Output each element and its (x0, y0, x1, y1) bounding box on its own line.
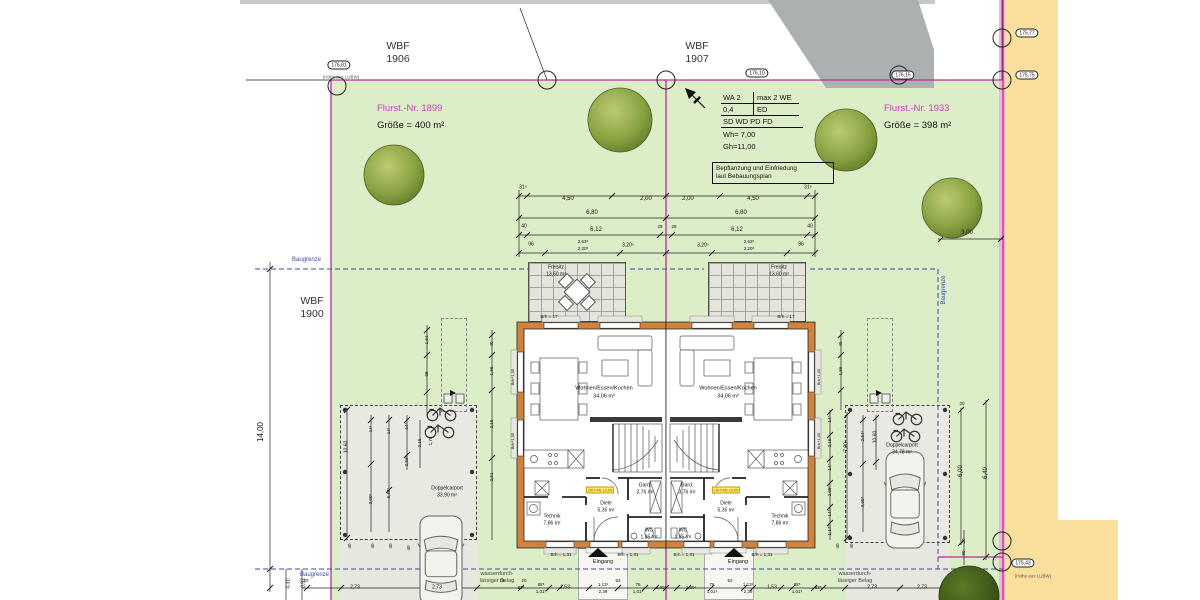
wbf-1907-label: WBF1907 (662, 40, 732, 65)
elevation-source-label: (Höhe aus LUBW) (1015, 574, 1052, 579)
dim-label: 2,00 (682, 196, 694, 202)
survey-point-marker (993, 532, 1011, 550)
dim-label: 3,20⁵ (697, 244, 709, 249)
dim-label: 4,50 (747, 196, 759, 202)
dim-label: 1,09¹ (656, 586, 666, 591)
dim-label: 1,86 (490, 367, 495, 376)
zoning-wh: Wh= 7,00 (721, 128, 803, 140)
floor-level-tag: OK FFB ±0,00 (712, 487, 740, 494)
dim-label: 14,00 (257, 422, 265, 442)
dimension-line (520, 8, 547, 80)
dim-label: 3,00⁵ (369, 494, 374, 505)
dim-label: 1,53 (560, 586, 570, 591)
paving-note-left: wasserdurch-lässiger Belag (480, 571, 515, 585)
dim-label: 40 (839, 341, 844, 346)
bicycle-icon (427, 408, 456, 421)
dim-label: 2,73 (432, 586, 442, 591)
dim-label: 2,73 (917, 586, 927, 591)
dim-label: 1,64 (425, 336, 430, 345)
elevation-label: 175,43 (1011, 559, 1034, 568)
dim-label: 31⁵ (804, 186, 812, 191)
dim-label: WC (679, 529, 687, 534)
dim-label: 13,60 m² (546, 273, 566, 278)
dim-label: Brh = 1,31 (618, 553, 639, 558)
zoning-gh: Gh=11,00 (721, 140, 803, 152)
zoning-units: max 2 WE (753, 92, 799, 103)
dim-label: 1,01⁵ (707, 590, 718, 595)
dim-label: 31⁵ (519, 186, 527, 191)
dim-label: 6,40 (983, 467, 989, 479)
dim-label: 88⁵ (794, 583, 801, 588)
dim-label: 33,90 m² (437, 494, 457, 499)
dim-label: 4,50 (562, 196, 574, 202)
dim-label: Freisitz (548, 266, 564, 271)
dim-label: 76 (709, 583, 714, 588)
dim-label: Brh+1,05 (511, 433, 515, 449)
dim-label: 14⁵ (828, 510, 833, 517)
dim-label: 87⁵ (518, 586, 525, 591)
dim-label: 52 (727, 579, 732, 584)
dim-label: 2,20⁵ (578, 247, 589, 252)
dim-label: 1,01⁵ (633, 590, 644, 595)
dim-label: 20 (962, 538, 967, 543)
parcel-left-label: Flurst.-Nr. 1899 Größe = 400 m² (377, 100, 444, 134)
planting-note: Bepflanzung und Einfriedunglaut Bebauung… (712, 162, 834, 184)
dim-label: 2,39 (599, 590, 608, 595)
dim-label: 1,13¹ (598, 583, 608, 588)
tree (364, 145, 424, 205)
dim-label: 87⁵ (815, 586, 822, 591)
dim-label: Doppelcarport (431, 487, 462, 492)
paving-note-right: wasserdurch-lässiger Belag (838, 571, 873, 585)
dim-label: 5,35 m² (718, 509, 735, 514)
dim-label: 6,80 (586, 210, 598, 216)
dim-label: Brh = 17 (540, 315, 557, 320)
dim-label: 2,56⁵ (405, 456, 410, 467)
dim-label: 3,00⁵ (861, 497, 866, 508)
dim-label: 2,00 (640, 196, 652, 202)
dim-label: 40 (348, 543, 353, 548)
dim-label: 10,60 (345, 441, 350, 454)
dim-label: 14¹ (387, 428, 392, 435)
dim-label: 1,85 m² (675, 536, 692, 541)
dim-label: Wohnen/Essen/Kochen (699, 386, 756, 392)
tree (922, 178, 982, 238)
dim-label: 28 (657, 225, 662, 230)
house-unit (511, 316, 666, 554)
tree (588, 88, 652, 152)
dim-label: 1,17⁵ (828, 525, 833, 536)
bicycle-icon (891, 429, 920, 442)
dim-label: 98 (425, 371, 430, 376)
dim-label: Brh = 1,31 (674, 553, 695, 558)
dim-label: Brh = 1,31 (551, 553, 572, 558)
dim-label: 1,13¹ (743, 583, 753, 588)
dim-label: 10,60 (874, 431, 879, 444)
dim-label: 40 (850, 543, 855, 548)
dim-label: Brh+1,05 (817, 369, 821, 385)
dim-label: Brh+1,05 (511, 369, 515, 385)
baugrenze-label-right: Baugrenze (941, 275, 947, 304)
dim-label: 14⁵ (405, 423, 410, 430)
dim-label: Freisitz (771, 266, 787, 271)
dim-label: 1,78 (429, 437, 434, 446)
bicycle-icon (893, 412, 922, 425)
floor-level-tag: OK FFB ±0,00 (586, 487, 614, 494)
survey-point-marker (993, 553, 1011, 571)
zoning-roof-types: SD WD PD FD (721, 116, 803, 128)
dim-label: 20 (521, 579, 526, 584)
dim-label: 20 (959, 402, 964, 407)
dim-label: 40 (407, 545, 412, 550)
dim-label: 5,69⁵ (387, 488, 392, 499)
elevation-label: 176,81 (327, 61, 350, 70)
dim-label: 76 (635, 583, 640, 588)
dim-label: 4,31¹ (287, 577, 292, 588)
elevation-label: 176,15 (891, 71, 914, 80)
dim-label: 2,15 (828, 439, 833, 448)
dim-label: 14 (499, 579, 504, 584)
dim-label: 2,73 (867, 586, 877, 591)
dim-label: Technik (772, 515, 789, 520)
dim-label: 53 (615, 579, 620, 584)
dim-label: 40 (490, 341, 495, 346)
dim-label: Brh+1,05 (817, 433, 821, 449)
dim-label: 3,76 m² (679, 491, 696, 496)
dim-label: 1,09¹ (686, 586, 696, 591)
dim-label: 2,15 (490, 420, 495, 429)
dim-label: 34,06 m² (717, 394, 739, 400)
dim-label: 3,76 m² (637, 491, 654, 496)
dim-label: 1,01⁵ (792, 590, 803, 595)
dim-label: 80 (962, 550, 967, 555)
dim-label: 40 (371, 543, 376, 548)
dim-label: 13,60 m² (769, 273, 789, 278)
dim-label: 34,78 m² (892, 451, 912, 456)
elevation-source-label: (Höhe aus LUBW) (323, 75, 360, 80)
dim-label: 7,86 m² (544, 522, 561, 527)
dim-label: 1,01⁵ (536, 590, 547, 595)
dim-label: Brh = 1,31 (752, 553, 773, 558)
dim-label: 40 (836, 543, 841, 548)
dim-label: 88⁵ (538, 583, 545, 588)
dim-label: 7,86 m² (772, 522, 789, 527)
north-arrow-icon (685, 88, 705, 108)
dim-label: 14⁵ (828, 464, 833, 471)
dim-label: 5,35 m² (598, 509, 615, 514)
dim-label: 28 (671, 225, 676, 230)
zoning-grz: 0,4 (721, 104, 753, 115)
dim-label: 2,39 (744, 590, 753, 595)
wbf-1906-label: WBF1906 (363, 40, 433, 65)
dim-label: 1,53 (767, 586, 777, 591)
zoning-area: WA 2 (721, 92, 753, 103)
dim-label: 20 (303, 579, 308, 584)
dim-label: 40 (521, 225, 527, 230)
dim-label: 34,06 m² (593, 394, 615, 400)
dim-label: 7,20 (845, 442, 850, 452)
dim-label: 2,08⁵ (828, 486, 833, 497)
dim-label: Gard. (681, 484, 694, 489)
dim-label: 1,85 m² (641, 536, 658, 541)
dim-label: Technik (544, 515, 561, 520)
dim-label: 2,20⁵ (744, 247, 755, 252)
elevation-label: 176,10 (745, 69, 768, 78)
dim-label: 6,12 (731, 227, 743, 233)
dim-label: Diele (600, 502, 611, 507)
elevation-label: 175,75 (1015, 71, 1038, 80)
dim-label: 96 (798, 243, 804, 248)
entrance-label-right: Eingang (728, 559, 748, 565)
entrance-label-left: Eingang (593, 559, 613, 565)
dim-label: 2,54⁵ (861, 431, 866, 442)
dim-label: 1,86 (839, 367, 844, 376)
dim-label: 96 (528, 243, 534, 248)
elevation-label: 175,77 (1015, 29, 1038, 38)
dim-label: 6,00 (958, 465, 964, 477)
dim-label: 2,15 (418, 439, 423, 448)
dim-label: 6,80 (735, 210, 747, 216)
car-right (884, 452, 926, 548)
dim-label: 2,73 (350, 586, 360, 591)
dim-label: Wohnen/Essen/Kochen (575, 386, 632, 392)
dim-label: 14⁵ (828, 416, 833, 423)
site-plan: WBF1906 WBF1907 WBF1900 Flurst.-Nr. 1899… (0, 0, 1200, 600)
wbf-1900-label: WBF1900 (277, 295, 347, 320)
dim-label: Diele (720, 502, 731, 507)
dim-label: 40 (807, 225, 813, 230)
dim-label: 3,00 (961, 230, 973, 236)
dim-label: 2,63⁵ (744, 240, 755, 245)
dim-label: 3,20⁵ (622, 244, 634, 249)
dim-label: Brh = 17 (777, 315, 794, 320)
dim-label: 6,12 (590, 227, 602, 233)
dim-label: Doppelcarport (886, 444, 917, 449)
zoning-table: WA 2max 2 WE 0,4ED SD WD PD FD Wh= 7,00 … (721, 92, 803, 152)
dim-label: Gard. (639, 484, 652, 489)
baugrenze-label-top: Baugrenze (292, 257, 321, 263)
zoning-ed: ED (753, 104, 799, 115)
dim-label: WC (645, 529, 653, 534)
parcel-right-label: Flurst.-Nr. 1933 Größe = 398 m² (884, 100, 951, 134)
dim-label: 14¹ (369, 426, 374, 433)
dim-label: 2,51 (490, 473, 495, 482)
dim-label: 2,63⁵ (578, 240, 589, 245)
tree (939, 566, 999, 600)
dim-label: 40 (389, 543, 394, 548)
